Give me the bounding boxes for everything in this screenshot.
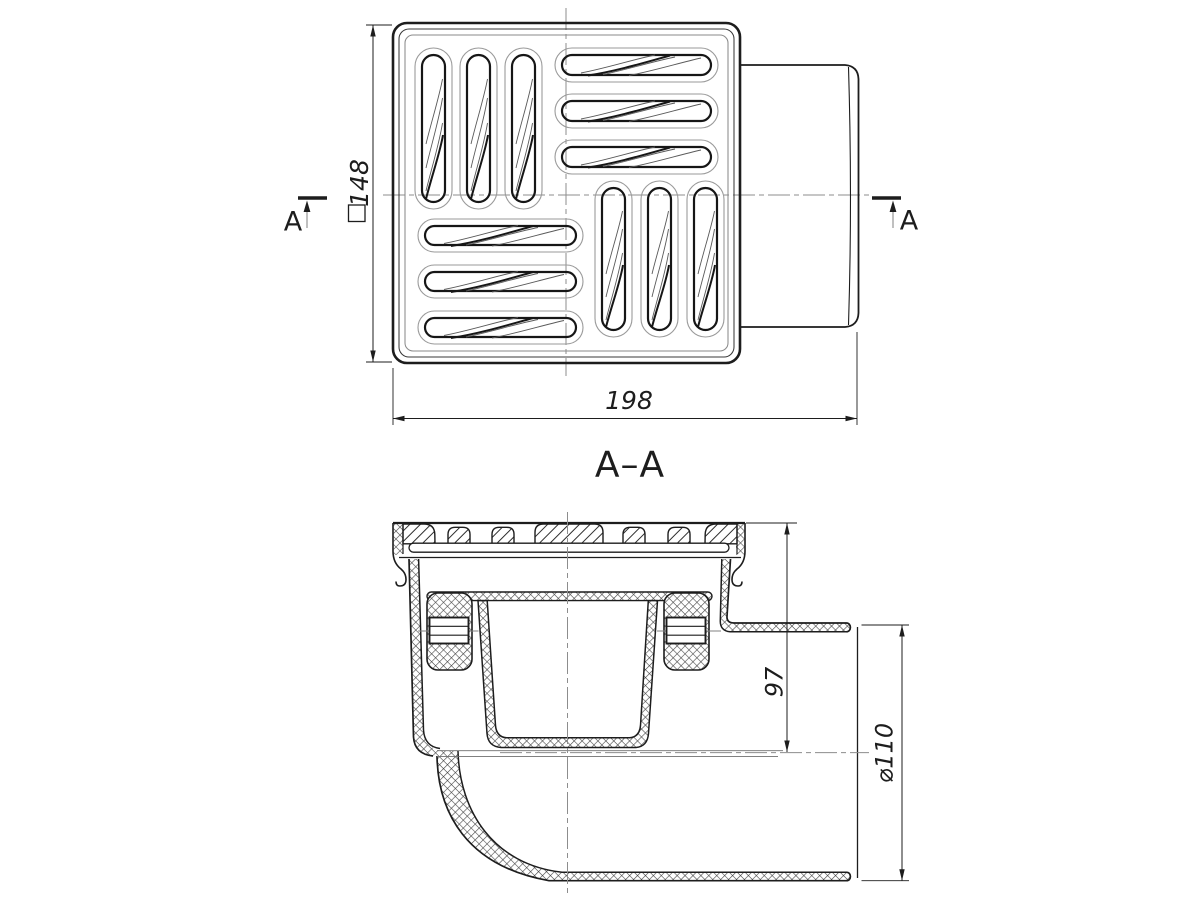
dim-overall-width-label: 198 bbox=[605, 386, 653, 415]
drawing-sheet: 148 198 A A A–A bbox=[0, 0, 1200, 900]
dim-square-side-label: 148 bbox=[345, 159, 374, 207]
dim-outlet-diameter-label: ⌀110 bbox=[870, 723, 898, 783]
dim-outlet-depth-label: 97 bbox=[760, 666, 788, 697]
section-letter-left: A bbox=[284, 206, 303, 237]
technical-drawing-svg: 148 198 A A A–A bbox=[0, 0, 1200, 900]
section-title: A–A bbox=[595, 445, 665, 486]
section-letter-right: A bbox=[900, 205, 919, 236]
